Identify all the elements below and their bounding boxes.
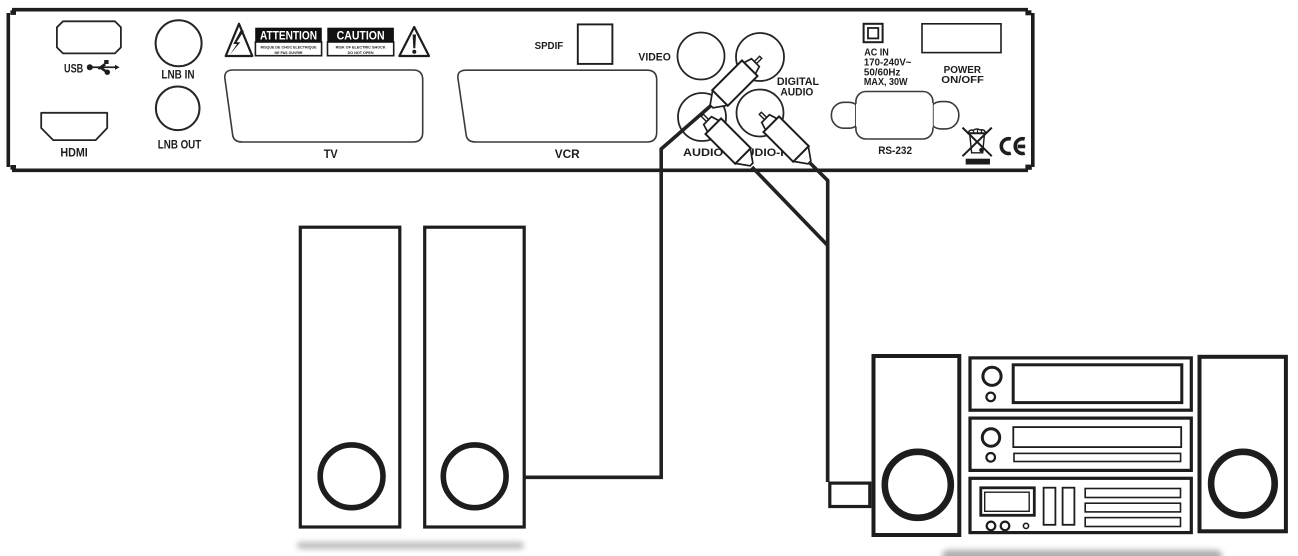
svg-text:NE PAS OUVRIR: NE PAS OUVRIR <box>275 50 303 55</box>
svg-text:CAUTION: CAUTION <box>337 28 385 42</box>
svg-text:TV: TV <box>324 147 338 161</box>
svg-text:MAX, 30W: MAX, 30W <box>864 76 908 88</box>
svg-text:LNB OUT: LNB OUT <box>158 138 202 152</box>
svg-text:SPDIF: SPDIF <box>535 40 564 52</box>
svg-text:DO NOT OPEN: DO NOT OPEN <box>348 50 374 55</box>
svg-text:VIDEO: VIDEO <box>638 51 671 63</box>
svg-text:HDMI: HDMI <box>60 146 87 160</box>
svg-text:USB: USB <box>64 61 83 75</box>
svg-text:ON/OFF: ON/OFF <box>941 74 984 86</box>
svg-text:RS-232: RS-232 <box>878 145 912 157</box>
svg-text:AUDIO: AUDIO <box>780 86 813 98</box>
svg-text:LNB IN: LNB IN <box>161 67 194 81</box>
svg-text:ATTENTION: ATTENTION <box>260 28 317 42</box>
svg-text:VCR: VCR <box>555 147 580 161</box>
